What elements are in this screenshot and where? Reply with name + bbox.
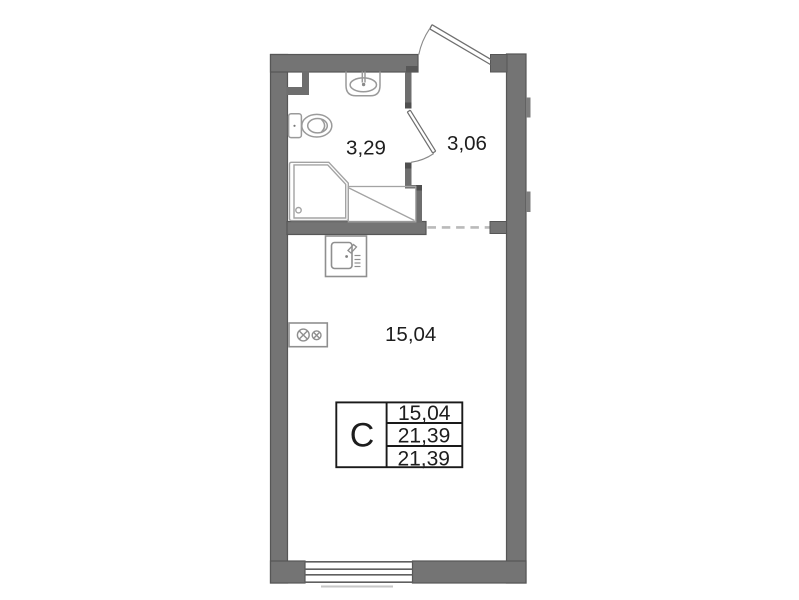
svg-text:3,06: 3,06	[447, 132, 487, 155]
svg-text:C: C	[350, 416, 375, 454]
svg-text:21,39: 21,39	[397, 447, 450, 470]
svg-text:21,39: 21,39	[398, 425, 451, 448]
svg-text:15,04: 15,04	[385, 323, 436, 346]
svg-text:3,29: 3,29	[346, 137, 386, 160]
svg-text:15,04: 15,04	[398, 402, 451, 425]
